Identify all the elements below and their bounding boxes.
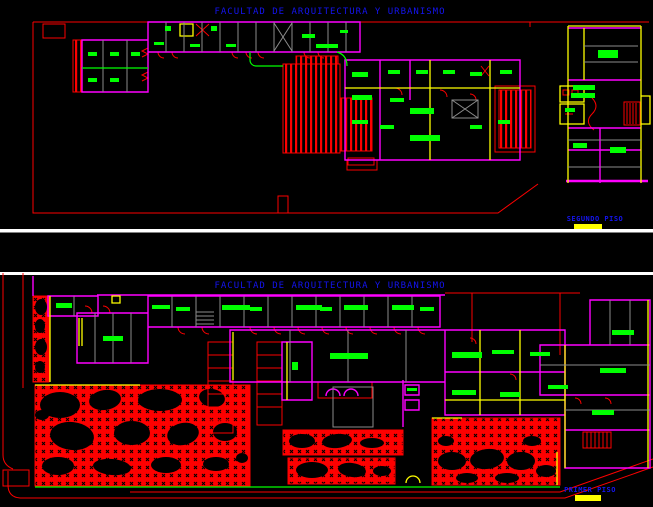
rock [536, 465, 556, 477]
plan-title-primer: FACULTAD DE ARQUITECTURA Y URBANISMO [214, 281, 445, 291]
cad-drawing: FACULTAD DE ARQUITECTURA Y URBANISMO SEG… [0, 0, 653, 507]
legend-label: PRIMER PISO [564, 486, 616, 494]
rock [236, 453, 248, 463]
rock [296, 462, 328, 478]
viewport-divider-top [0, 229, 653, 233]
rock [114, 421, 150, 445]
rock [289, 434, 315, 448]
auditorium-hatch-main [283, 64, 340, 153]
drawing-sheet: FACULTAD DE ARQUITECTURA Y URBANISMO SEG… [0, 0, 653, 507]
rock [360, 438, 384, 448]
rock [523, 436, 541, 446]
rock [138, 389, 182, 411]
auditorium-hatch-top [296, 56, 338, 64]
rock [151, 457, 181, 473]
stripe-bar-left [73, 40, 82, 92]
rock [495, 473, 519, 483]
rock [42, 457, 74, 475]
rock [35, 319, 45, 333]
rock [507, 452, 535, 470]
rock [373, 466, 391, 476]
viewport-divider-bottom [0, 272, 653, 275]
rock [35, 410, 49, 420]
stage-hatch [499, 90, 531, 148]
legend-swatch [574, 224, 602, 229]
legend-swatch [575, 495, 601, 501]
rock [203, 457, 229, 471]
rock [35, 299, 47, 315]
rock [35, 339, 47, 355]
rock [456, 473, 478, 483]
rock [438, 436, 454, 446]
rock [35, 361, 45, 373]
rock [438, 452, 466, 470]
legend-label: SEGUNDO PISO [567, 215, 624, 223]
plan-title-segundo: FACULTAD DE ARQUITECTURA Y URBANISMO [214, 7, 445, 17]
